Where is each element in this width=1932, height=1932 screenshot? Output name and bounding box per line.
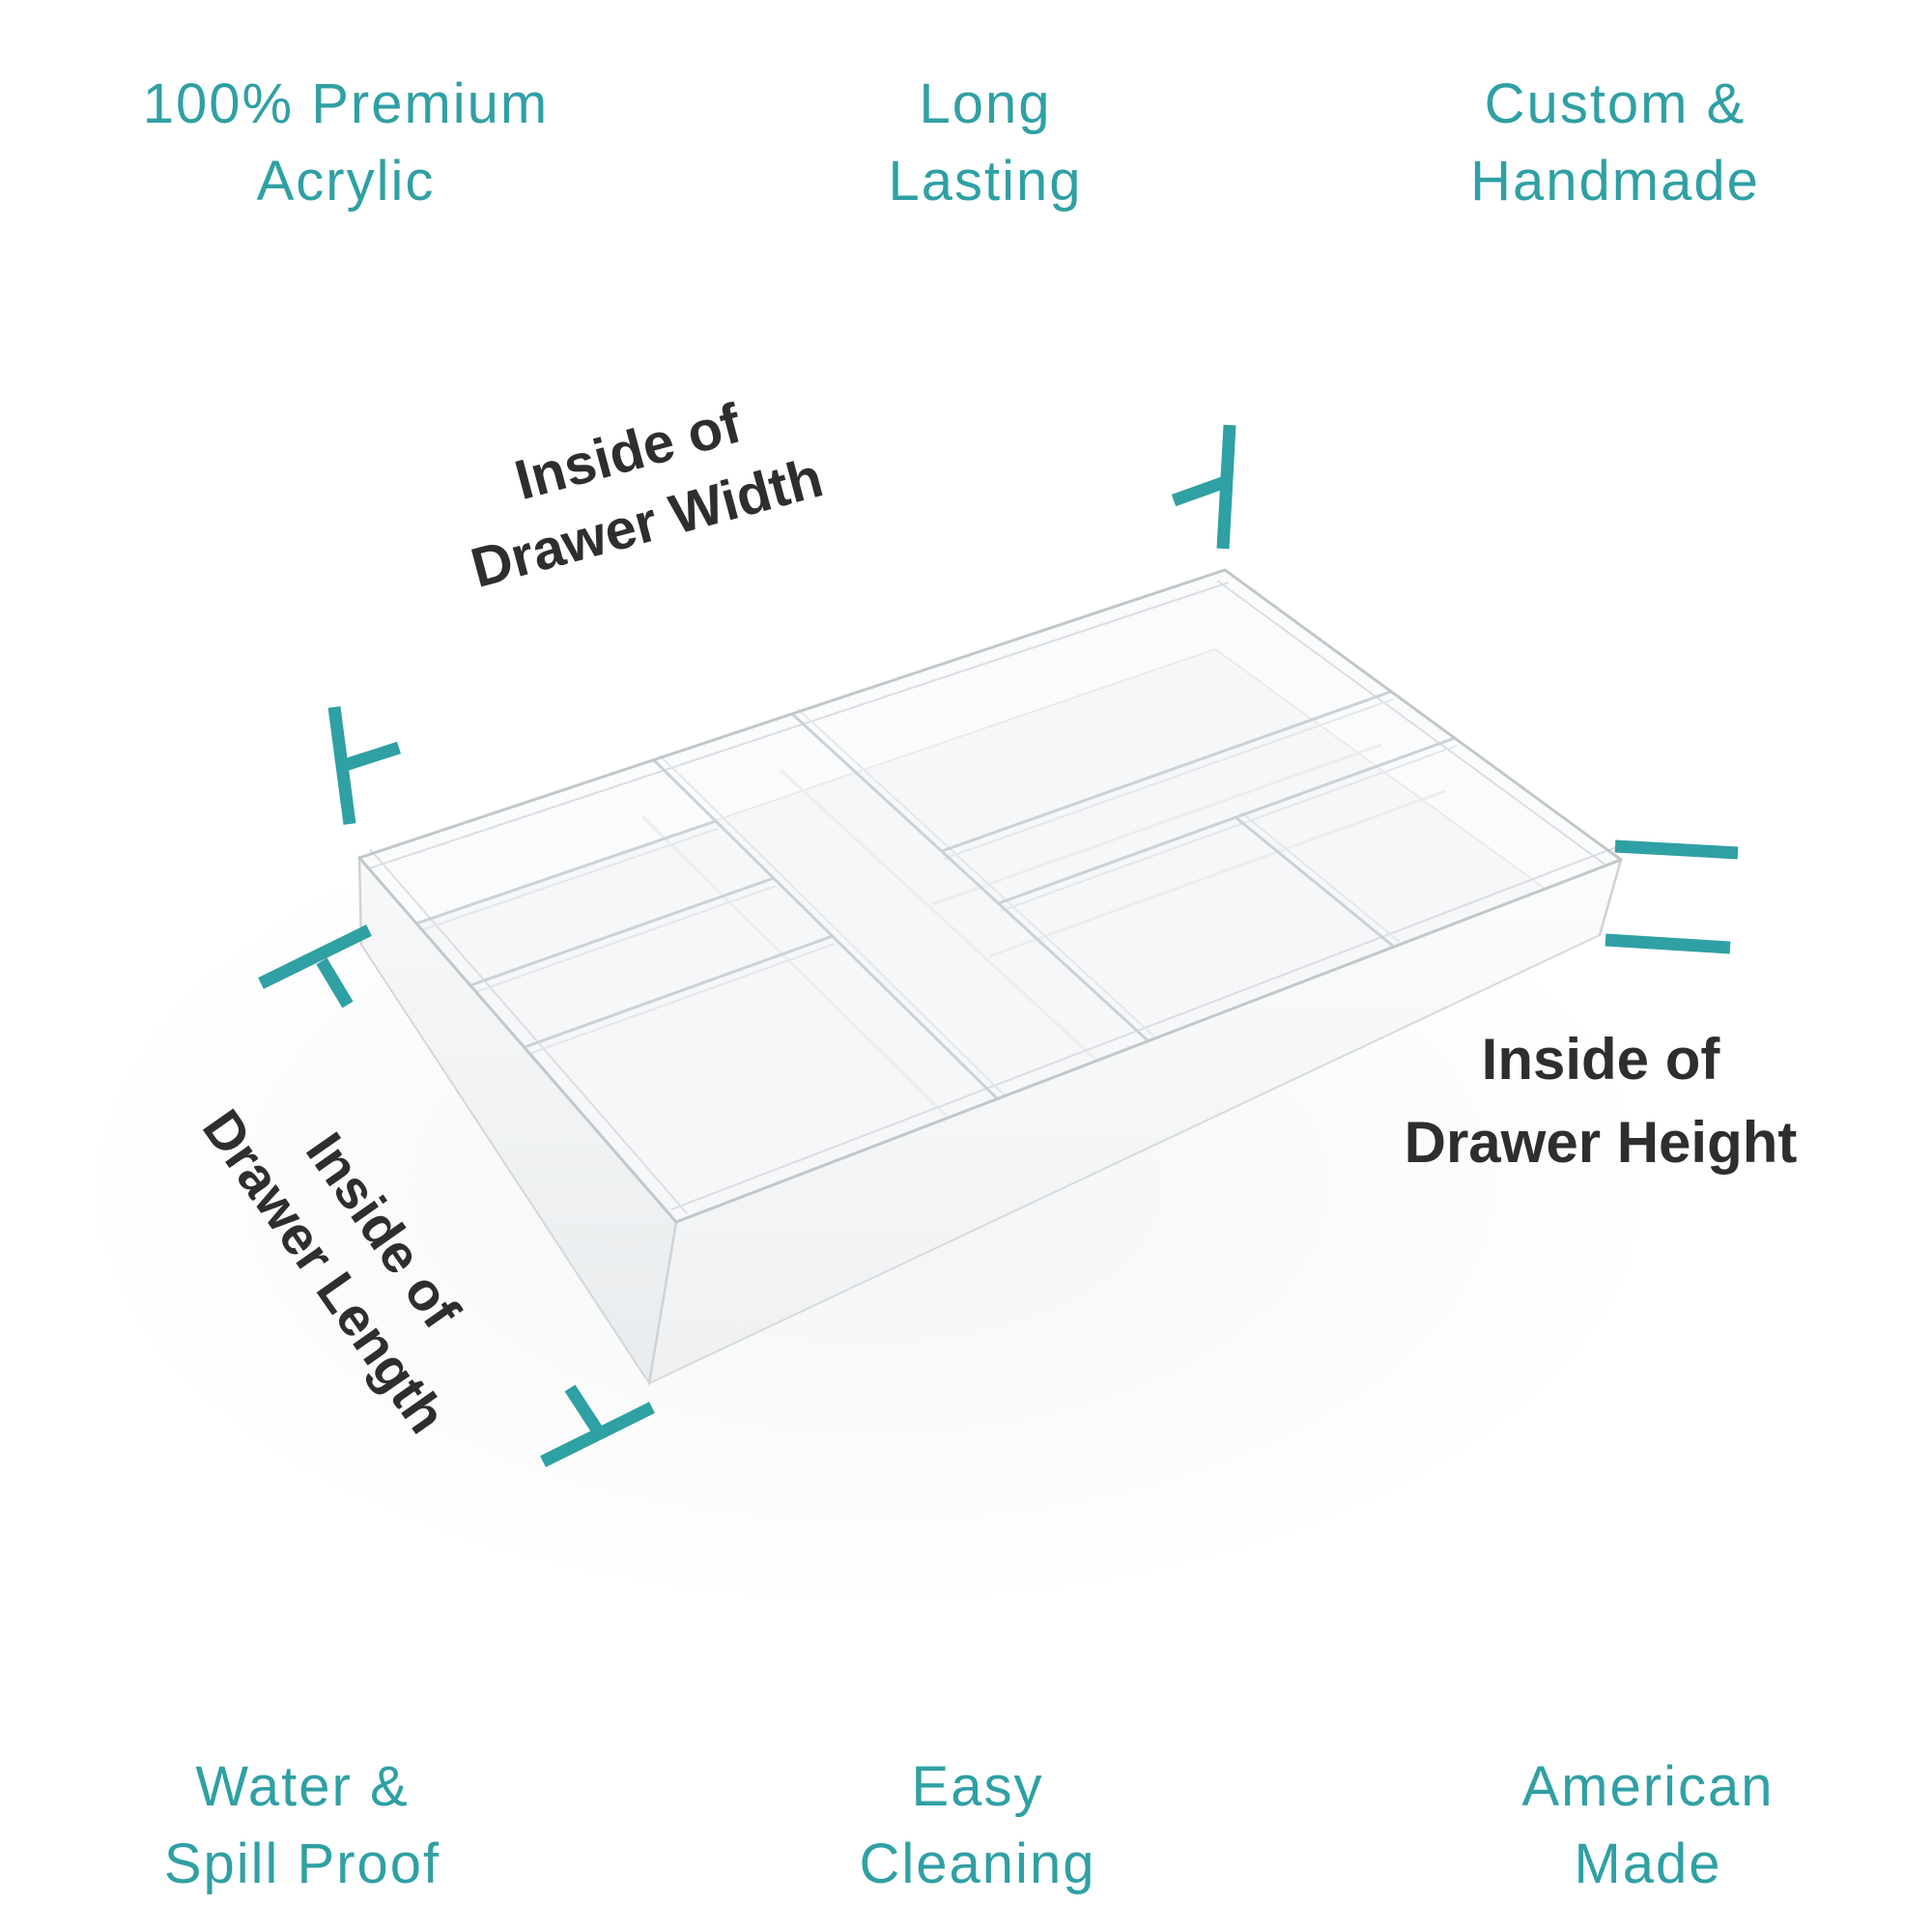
dimension-label-line: Inside of: [1301, 1018, 1900, 1101]
feature-line: Spill Proof: [0, 1826, 640, 1903]
feature-line: Easy: [639, 1748, 1316, 1826]
feature-water-spill-proof: Water & Spill Proof: [0, 1748, 640, 1903]
feature-line: Long: [647, 66, 1323, 143]
feature-line: American: [1310, 1748, 1932, 1826]
width-dimension-tick-right: [1174, 425, 1230, 549]
height-dimension-tick-bottom: [1605, 940, 1730, 948]
product-infographic: 100% Premium Acrylic Long Lasting Custom…: [0, 0, 1932, 1932]
feature-line: Handmade: [1277, 143, 1932, 220]
feature-custom-handmade: Custom & Handmade: [1277, 66, 1932, 220]
feature-premium-acrylic: 100% Premium Acrylic: [8, 66, 684, 220]
drawer-organizer-illustration: [0, 0, 1932, 1932]
feature-line: Water &: [0, 1748, 640, 1826]
feature-line: Lasting: [647, 143, 1323, 220]
feature-line: 100% Premium: [8, 66, 684, 143]
feature-long-lasting: Long Lasting: [647, 66, 1323, 220]
width-dimension-tick-left: [334, 707, 399, 824]
feature-line: Acrylic: [8, 143, 684, 220]
feature-line: Cleaning: [639, 1826, 1316, 1903]
feature-easy-cleaning: Easy Cleaning: [639, 1748, 1316, 1903]
feature-line: Made: [1310, 1826, 1932, 1903]
dimension-label-line: Drawer Height: [1301, 1101, 1900, 1184]
dimension-label-height: Inside of Drawer Height: [1301, 1018, 1900, 1184]
feature-american-made: American Made: [1310, 1748, 1932, 1903]
height-dimension-tick-top: [1615, 846, 1738, 853]
feature-line: Custom &: [1277, 66, 1932, 143]
